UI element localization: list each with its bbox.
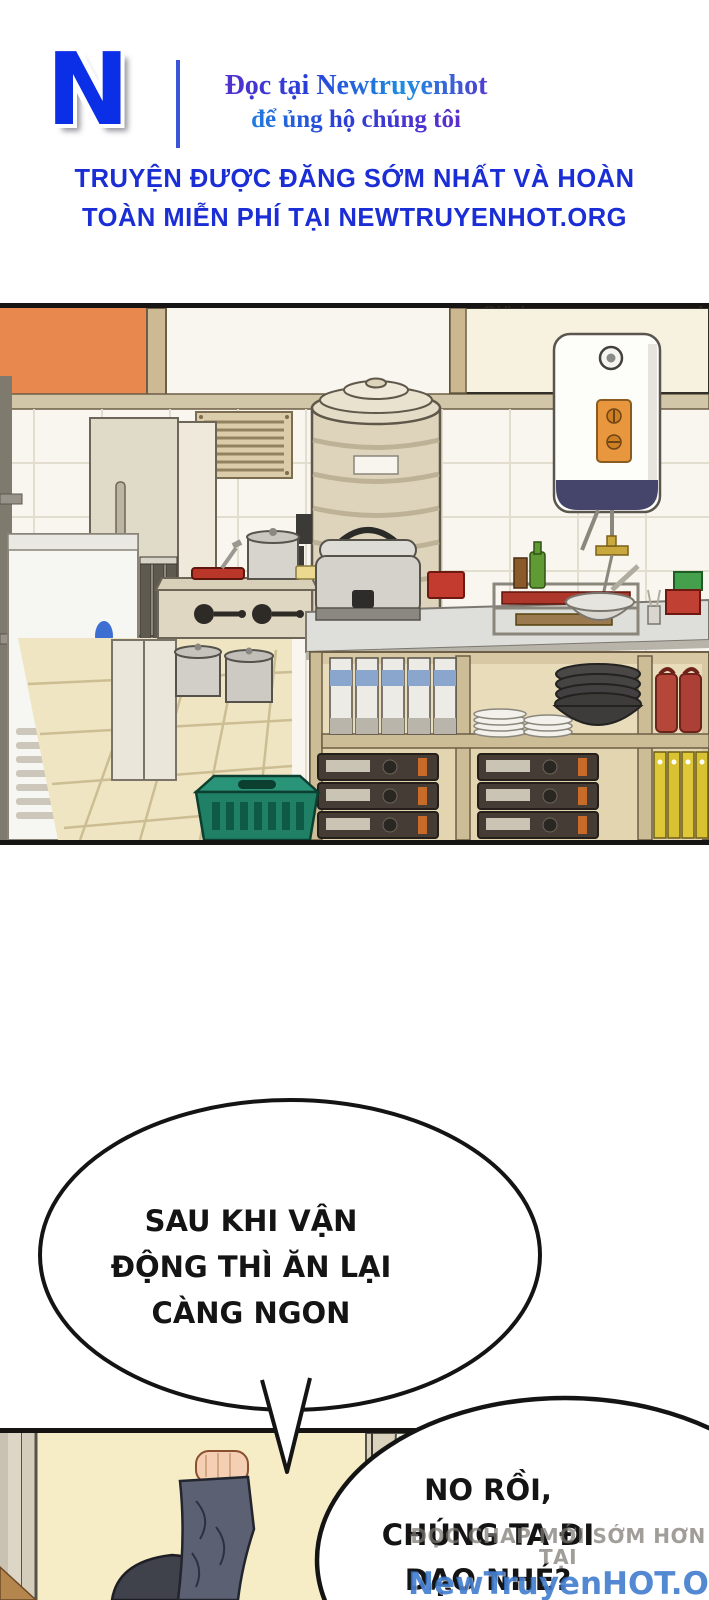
newtruyenhot-watermark: ĐỌC CHAP MỚI SỚM HƠN TẠI NewTruyenHOT.Or… — [408, 1526, 708, 1600]
bubble1-line2: ĐỘNG THÌ ĂN LẠI — [55, 1244, 447, 1290]
green-box — [674, 572, 702, 590]
red-box — [666, 590, 700, 614]
site-logo-n: N — [46, 40, 130, 140]
black-cases-stack — [318, 754, 438, 838]
panel1-bottom-border — [0, 840, 709, 845]
tagline-line2: để ủng hộ chúng tôi — [196, 106, 516, 134]
rice-cooker-icon — [316, 530, 420, 620]
logo-divider — [176, 60, 180, 148]
stock-pot-icon — [225, 648, 273, 703]
black-cases-stack — [478, 754, 598, 838]
green-crate-icon — [196, 776, 318, 840]
tagline-line1: Đọc tại Newtruyenhot — [196, 70, 516, 102]
steel-pot-icon — [247, 528, 299, 579]
wood-pillar — [147, 308, 166, 398]
site-tagline: Đọc tại Newtruyenhot để ủng hộ chúng tôi — [196, 70, 516, 134]
orange-wall — [0, 308, 150, 398]
banner-line2: TOÀN MIỄN PHÍ TẠI NEWTRUYENHOT.ORG — [0, 199, 709, 238]
site-banner: TRUYỆN ĐƯỢC ĐĂNG SỚM NHẤT VÀ HOÀN TOÀN M… — [0, 160, 709, 238]
speech-bubble-1-text: SAU KHI VẬN ĐỘNG THÌ ĂN LẠI CÀNG NGON — [55, 1198, 447, 1336]
milk-cartons — [330, 658, 456, 734]
bowl-stack — [555, 664, 641, 725]
footer-watermark-line1: ĐỌC CHAP MỚI SỚM HƠN TẠI — [408, 1526, 708, 1568]
kitchen-scene-illustration — [0, 308, 709, 840]
stove-icon — [156, 578, 318, 638]
footer-watermark-line2: NewTruyenHOT.Org — [408, 1568, 708, 1600]
banner-line1: TRUYỆN ĐƯỢC ĐĂNG SỚM NHẤT VÀ HOÀN — [0, 160, 709, 199]
bubble1-line1: SAU KHI VẬN — [55, 1198, 447, 1244]
shelf-bracket — [0, 494, 22, 504]
bubble1-line3: CÀNG NGON — [55, 1290, 447, 1336]
stock-pot-icon — [175, 644, 221, 697]
bubble2-line1: NO RỒI, — [342, 1468, 634, 1513]
red-container — [428, 572, 464, 598]
comic-page: N Đọc tại Newtruyenhot để ủng hộ chúng t… — [0, 0, 709, 1600]
